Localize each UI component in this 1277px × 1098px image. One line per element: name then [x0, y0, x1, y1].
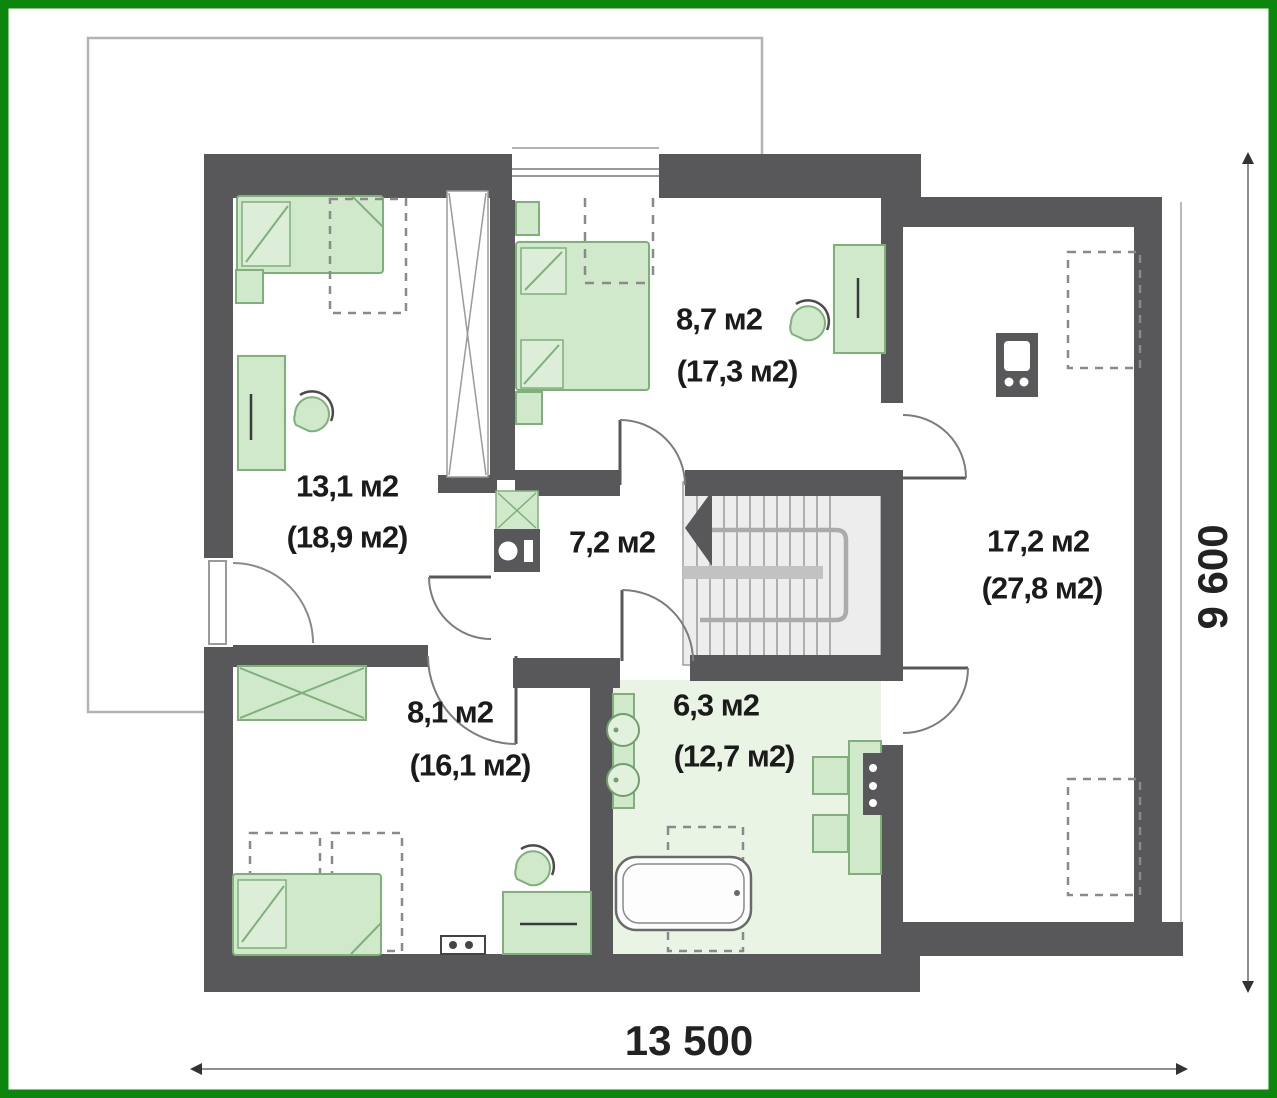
wall-stairs-bottom [690, 655, 903, 681]
stool-icon [813, 815, 848, 852]
stair-landing-edge [683, 566, 823, 579]
wall-right-section-top [903, 197, 1162, 227]
room-area-label: 8,1 м2 [407, 697, 493, 728]
sink-icon [607, 714, 639, 746]
room-area-total-label: (16,1 м2) [410, 750, 531, 781]
room-area-label: 8,7 м2 [676, 304, 762, 335]
room-area-label: 7,2 м2 [569, 527, 655, 558]
height-dimension-line [1242, 152, 1254, 993]
wall-bathroom-right [881, 745, 903, 954]
desk-icon [834, 245, 885, 353]
nightstand-icon [236, 270, 263, 303]
wall-hall-bottom [233, 645, 428, 667]
room-area-total-label: (27,8 м2) [982, 573, 1103, 604]
room-area-total-label: (12,7 м2) [674, 741, 795, 772]
towel-radiator-icon [863, 753, 884, 815]
room-area-label: 6,3 м2 [673, 690, 759, 721]
stool-icon [813, 757, 848, 794]
nightstand-icon [516, 202, 539, 235]
floor-plan-page: 13,1 м2 (18,9 м2) 8,7 м2 (17,3 м2) 7,2 м… [0, 0, 1277, 1098]
bathtub-icon [616, 857, 751, 930]
wall-bedroom-left-partition [490, 154, 515, 480]
wardrobe-icon [238, 666, 366, 720]
wall-middle-right [881, 478, 903, 668]
room-area-total-label: (18,9 м2) [287, 522, 408, 553]
width-dimension-line [190, 1063, 1188, 1075]
shaft-wardrobe-icon [496, 491, 538, 530]
room-area-total-label: (17,3 м2) [677, 356, 798, 387]
room-area-label: 17,2 м2 [987, 526, 1089, 557]
staircase [683, 482, 881, 665]
width-dimension-value: 13 500 [625, 1020, 753, 1062]
radiator-icon [441, 936, 485, 954]
wall-bottom-main [204, 954, 920, 992]
height-dimension-value: 9 600 [1192, 524, 1234, 629]
sink-icon [607, 764, 639, 796]
chimney-flue-icon [996, 333, 1038, 397]
wall-right [1134, 197, 1162, 956]
washing-machine-icon [494, 529, 540, 572]
nightstand-icon [516, 392, 542, 424]
desk-icon [238, 356, 285, 470]
room-area-label: 13,1 м2 [296, 471, 398, 502]
wall-bedroom-bottom-right [685, 470, 903, 496]
window-icon [512, 146, 659, 200]
sliding-wardrobe-icon [447, 191, 488, 477]
wall-right-section-bottom [893, 922, 1183, 956]
